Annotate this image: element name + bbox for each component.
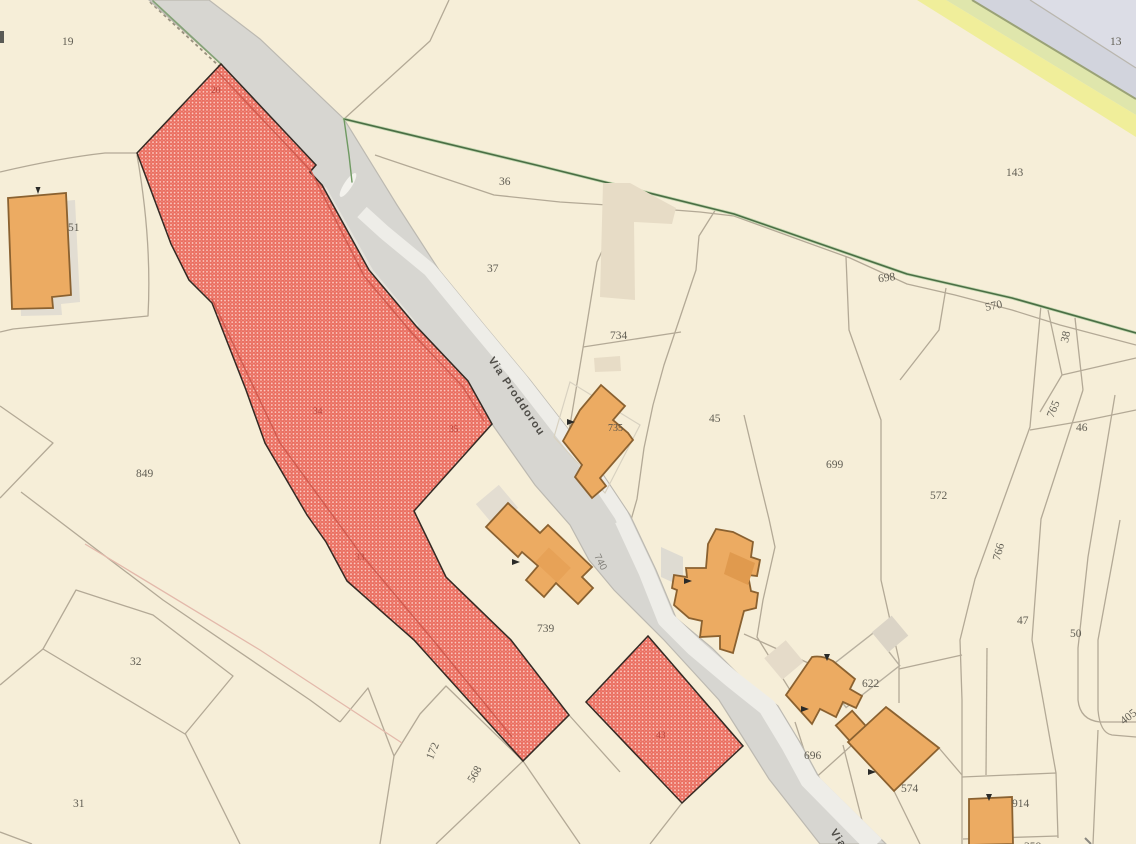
svg-text:735: 735 [608,423,623,434]
svg-text:35: 35 [449,425,459,435]
svg-text:699: 699 [826,459,844,471]
svg-text:45: 45 [709,413,721,425]
svg-text:734: 734 [610,330,628,342]
svg-text:51: 51 [68,222,80,234]
svg-text:849: 849 [136,468,154,480]
svg-text:13: 13 [1110,36,1122,48]
svg-text:739: 739 [537,623,555,635]
svg-text:32: 32 [130,656,142,668]
svg-text:37: 37 [487,263,499,275]
svg-text:50: 50 [1070,628,1082,640]
svg-text:143: 143 [1006,167,1024,179]
svg-text:47: 47 [1017,615,1029,627]
svg-text:914: 914 [1012,798,1030,810]
svg-text:622: 622 [862,678,880,690]
svg-text:43: 43 [656,731,666,741]
svg-text:696: 696 [804,750,822,762]
svg-text:36: 36 [499,176,511,188]
svg-text:34: 34 [313,407,323,417]
svg-text:572: 572 [930,490,948,502]
svg-text:574: 574 [901,783,919,795]
svg-text:31: 31 [73,798,85,810]
svg-text:19: 19 [62,36,74,48]
svg-text:33: 33 [355,553,365,563]
svg-text:698: 698 [877,271,896,285]
svg-text:20: 20 [211,86,221,96]
svg-text:46: 46 [1076,422,1088,434]
